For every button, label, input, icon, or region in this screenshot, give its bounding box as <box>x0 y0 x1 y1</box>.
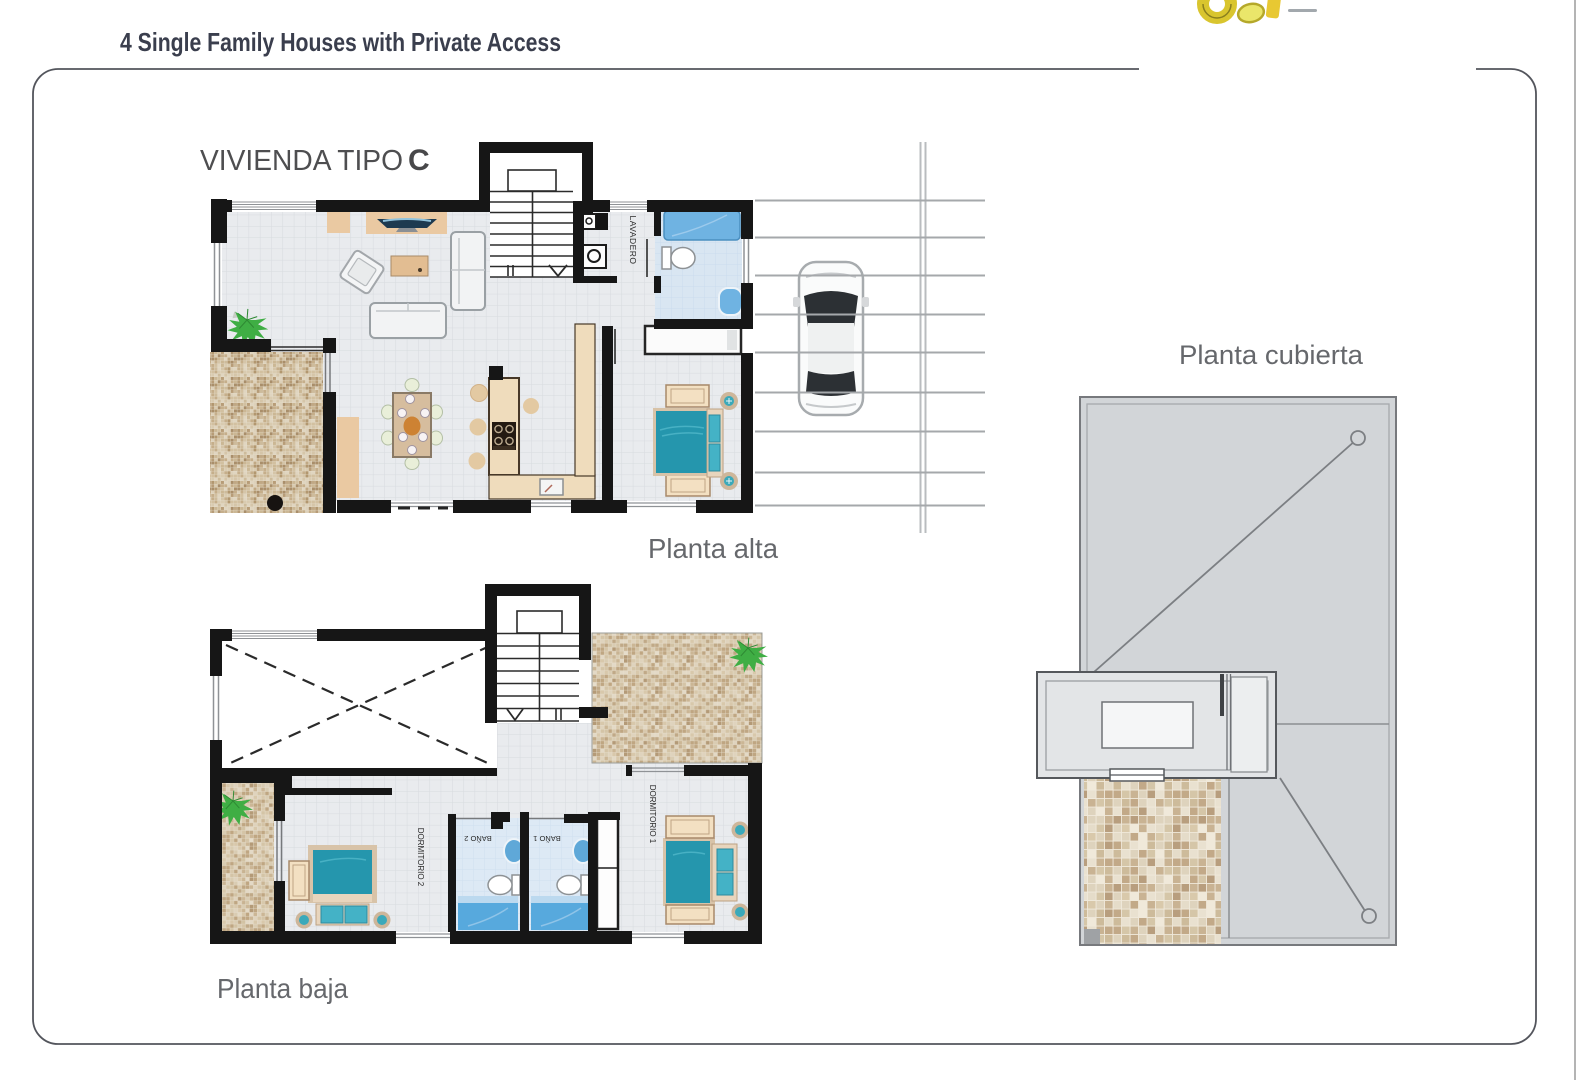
svg-text:4 Single Family Houses with Pr: 4 Single Family Houses with Private Acce… <box>120 27 561 57</box>
svg-text:LAVADERO: LAVADERO <box>628 215 638 264</box>
svg-text:BAÑO 2: BAÑO 2 <box>464 834 492 843</box>
svg-text:DORMITORIO 1: DORMITORIO 1 <box>648 785 657 844</box>
svg-text:C: C <box>408 144 430 177</box>
svg-text:Planta cubierta: Planta cubierta <box>1179 340 1364 370</box>
svg-text:Planta baja: Planta baja <box>217 973 348 1004</box>
svg-text:Planta alta: Planta alta <box>648 533 778 564</box>
svg-text:VIVIENDA TIPO: VIVIENDA TIPO <box>200 145 403 177</box>
svg-text:DORMITORIO 2: DORMITORIO 2 <box>416 828 425 887</box>
svg-text:BAÑO 1: BAÑO 1 <box>533 834 561 843</box>
